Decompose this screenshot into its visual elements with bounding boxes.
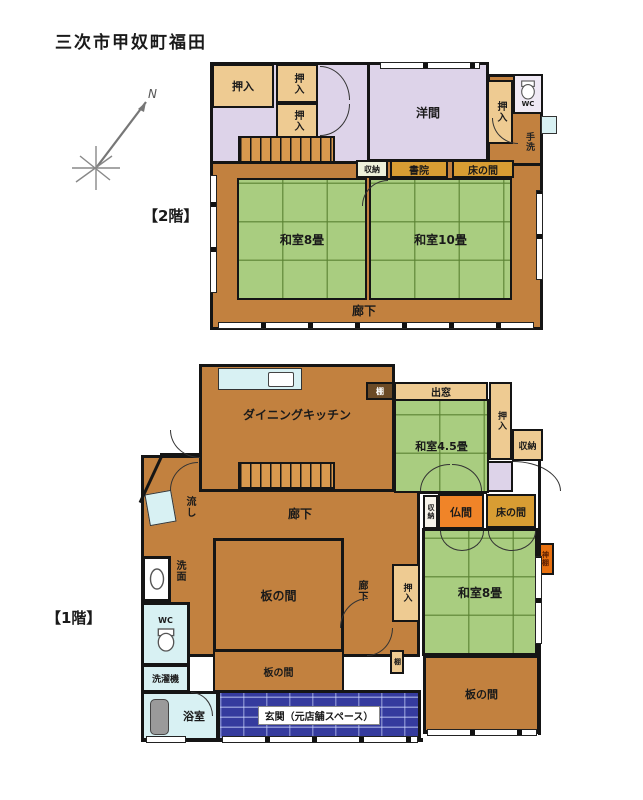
f1-itanoma-center-label: 板の間 xyxy=(260,587,296,604)
kitchen-sink-icon xyxy=(268,372,294,387)
f2-storage: 収納 xyxy=(356,160,388,178)
f1-storage-45: 収納 xyxy=(512,429,543,461)
f1-storage-45-label: 収納 xyxy=(518,439,536,452)
f1-kamidana-label: 神棚 xyxy=(542,551,549,567)
f2-window-top xyxy=(380,62,480,69)
f1-closet-8: 押入 xyxy=(392,564,420,622)
f1-tokonoma: 床の間 xyxy=(486,494,536,528)
f1-washitsu8-label: 和室8畳 xyxy=(458,584,502,601)
f1-window-genkan xyxy=(222,736,418,743)
toilet-icon xyxy=(519,80,537,100)
f1-itanoma-right-label: 板の間 xyxy=(465,686,498,702)
f1-bay-window-label: 出窓 xyxy=(431,384,451,399)
f2-closet-small-1: 押入 xyxy=(276,64,318,103)
f1-washbasin xyxy=(142,556,171,602)
f2-washitsu8-label: 和室8畳 xyxy=(280,231,324,248)
f2-corridor-label: 廊下 xyxy=(352,302,376,319)
f1-window-right xyxy=(535,556,542,644)
f1-side-entrance-arc xyxy=(513,461,561,491)
f2-western-room-label: 洋間 xyxy=(416,104,440,121)
f2-stairs xyxy=(238,136,335,163)
f2-wc-room: WC xyxy=(513,74,543,114)
f2-storage-label: 収納 xyxy=(364,164,380,175)
washbasin-icon xyxy=(149,567,165,591)
floorplan-canvas: 三次市甲奴町福田 N 【2階】 【1階】 洋間 押入 押入 押入 押入 WC xyxy=(0,0,643,800)
f2-window-left xyxy=(210,175,217,293)
f2-window-right xyxy=(536,190,543,280)
f1-itanoma-right: 板の間 xyxy=(423,655,540,733)
f1-shelf-label: 棚 xyxy=(376,386,384,397)
f1-shelf: 棚 xyxy=(366,382,394,400)
f1-window-bath xyxy=(146,736,186,743)
floor1-marker: 【1階】 xyxy=(46,607,101,628)
f2-hand-sink-icon xyxy=(541,116,557,134)
f1-laundry-label: 洗濯機 xyxy=(152,672,179,685)
f2-window-bottom xyxy=(218,322,534,329)
f2-shoin-label: 書院 xyxy=(409,162,429,177)
f2-closet-small-2: 押入 xyxy=(276,103,318,139)
f2-washstand-label: 手洗 xyxy=(524,132,533,152)
f2-closet-small-1-label: 押入 xyxy=(292,73,302,95)
f1-tokonoma-label: 床の間 xyxy=(496,504,526,519)
f1-stairs xyxy=(238,462,335,489)
f1-small-shelf-label: 棚 xyxy=(394,658,401,666)
f2-closet-left-label: 押入 xyxy=(232,78,254,94)
f2-tokonoma: 床の間 xyxy=(452,160,514,178)
compass-icon: N xyxy=(60,76,170,191)
compass-north-label: N xyxy=(148,87,157,101)
f1-itanoma-small: 板の間 xyxy=(213,650,344,692)
f1-closet-45: 押入 xyxy=(489,382,512,460)
f2-tokonoma-label: 床の間 xyxy=(468,162,498,177)
f2-washitsu8: 和室8畳 xyxy=(237,178,367,300)
f1-washitsu45-label: 和室4.5畳 xyxy=(415,438,468,454)
f1-sink-icon xyxy=(144,490,176,526)
f2-wc-label: WC xyxy=(522,100,535,108)
floor2-marker: 【2階】 xyxy=(143,205,198,226)
page-title: 三次市甲奴町福田 xyxy=(55,28,207,53)
bathtub-icon xyxy=(150,699,169,735)
f1-butsuma: 仏間 xyxy=(438,494,484,529)
f1-storage-butsuma-label: 収納 xyxy=(427,504,434,520)
f1-corridor-label: 廊下 xyxy=(288,505,312,522)
toilet-icon xyxy=(155,627,177,653)
f1-dining-kitchen-label: ダイニングキッチン xyxy=(243,406,351,423)
f2-western-room: 洋間 xyxy=(367,62,489,162)
f1-entrance-label: 玄関（元店舗スペース） xyxy=(258,706,381,725)
f1-itanoma-center: 板の間 xyxy=(213,538,344,652)
f2-shoin: 書院 xyxy=(390,160,448,178)
f1-closet-8-label: 押入 xyxy=(402,583,411,603)
f2-closet-small-2-label: 押入 xyxy=(292,110,302,132)
f1-window-itanoma-right xyxy=(427,729,537,736)
f1-sink-label: 流し xyxy=(184,496,194,518)
f1-wc-room: WC xyxy=(141,602,190,666)
f1-lavender-strip xyxy=(487,461,513,492)
f2-washitsu10: 和室10畳 xyxy=(369,178,512,300)
f1-small-shelf: 棚 xyxy=(390,650,404,674)
f1-laundry: 洗濯機 xyxy=(141,664,190,693)
f2-washitsu10-label: 和室10畳 xyxy=(414,231,467,248)
f1-butsuma-label: 仏間 xyxy=(450,504,472,520)
f1-wc-label: WC xyxy=(158,616,173,625)
f1-closet-45-label: 押入 xyxy=(496,411,505,431)
f1-washbasin-label: 洗面 xyxy=(174,560,184,582)
f1-storage-butsuma: 収納 xyxy=(423,495,438,529)
f1-entrance: 玄関（元店舗スペース） xyxy=(217,690,421,741)
f2-closet-left: 押入 xyxy=(212,64,274,108)
f1-left-wall xyxy=(141,498,144,742)
f1-itanoma-small-label: 板の間 xyxy=(264,664,294,679)
